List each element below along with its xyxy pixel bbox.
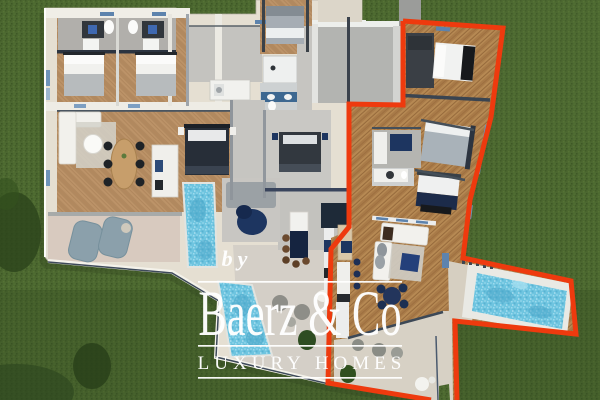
svg-text:LUXURY HOMES: LUXURY HOMES	[198, 353, 407, 374]
svg-text:Baerz & Co: Baerz & Co	[198, 277, 401, 349]
svg-text:by: by	[222, 246, 253, 271]
